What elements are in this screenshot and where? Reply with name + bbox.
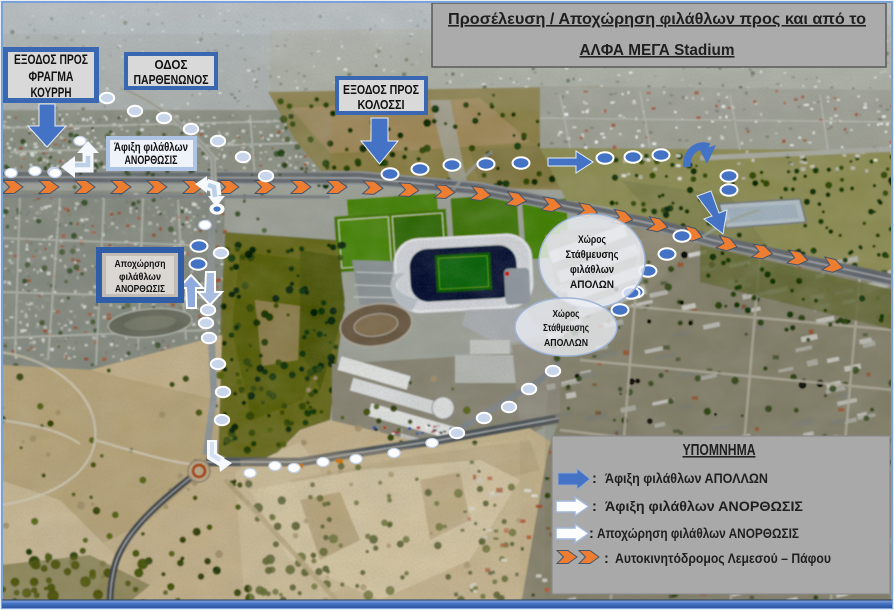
svg-text:ΑΠΟΛΩΝ: ΑΠΟΛΩΝ (570, 279, 614, 291)
svg-text:Στάθμευσης: Στάθμευσης (566, 249, 619, 261)
svg-text:ΕΞΟΔΟΣ ΠΡΟΣ: ΕΞΟΔΟΣ ΠΡΟΣ (343, 83, 419, 97)
svg-text:ΑΝΟΡΘΩΣΙΣ: ΑΝΟΡΘΩΣΙΣ (115, 283, 165, 295)
svg-text:ΚΟΛΟΣΣΙ: ΚΟΛΟΣΣΙ (358, 98, 405, 112)
svg-text:ΚΟΥΡΡΗ: ΚΟΥΡΡΗ (31, 84, 72, 100)
svg-text:ΠΑΡΘΕΝΩΝΟΣ: ΠΑΡΘΕΝΩΝΟΣ (134, 73, 209, 87)
svg-text:φιλάθλων: φιλάθλων (119, 271, 161, 283)
svg-text:ΥΠΟΜΝΗΜΑ: ΥΠΟΜΝΗΜΑ (683, 442, 756, 459)
svg-text:Αυτοκινητόδρομος Λεμεσού – Πάφ: Αυτοκινητόδρομος Λεμεσού – Πάφου (615, 550, 831, 566)
svg-text:ΟΔΟΣ: ΟΔΟΣ (155, 58, 188, 72)
svg-text:Χώρος: Χώρος (578, 234, 606, 246)
svg-text:ΦΡΑΓΜΑ: ΦΡΑΓΜΑ (29, 68, 74, 84)
svg-text:φιλάθλων: φιλάθλων (570, 264, 614, 276)
svg-text:Προσέλευση / Αποχώρηση φιλάθλω: Προσέλευση / Αποχώρηση φιλάθλων προς και… (448, 11, 866, 28)
svg-text::: : (592, 499, 597, 515)
svg-text:Αποχώρηση: Αποχώρηση (115, 258, 166, 270)
svg-text:Στάθμευσης: Στάθμευσης (543, 322, 589, 334)
svg-text:Άφιξη φιλάθλων ΑΠΟΛΛΩΝ: Άφιξη φιλάθλων ΑΠΟΛΛΩΝ (605, 470, 768, 486)
svg-text::: : (589, 526, 594, 542)
svg-text::: : (592, 471, 597, 487)
svg-text:Χώρος: Χώρος (553, 308, 580, 320)
svg-text:Άφιξη φιλάθλων ΑΝΟΡΘΩΣΙΣ: Άφιξη φιλάθλων ΑΝΟΡΘΩΣΙΣ (605, 498, 803, 514)
svg-text:Άφιξη φιλάθλων: Άφιξη φιλάθλων (114, 142, 188, 154)
svg-text:ΑΝΟΡΘΩΣΙΣ: ΑΝΟΡΘΩΣΙΣ (125, 155, 178, 167)
svg-text:Αποχώρηση φιλάθλων ΑΝΟΡΘΩΣΙΣ: Αποχώρηση φιλάθλων ΑΝΟΡΘΩΣΙΣ (597, 525, 799, 541)
svg-text:ΑΛΦΑ ΜΕΓΑ Stadium: ΑΛΦΑ ΜΕΓΑ Stadium (580, 42, 735, 59)
svg-text:ΕΞΟΔΟΣ ΠΡΟΣ: ΕΞΟΔΟΣ ΠΡΟΣ (14, 51, 88, 67)
svg-text::: : (604, 551, 609, 567)
svg-text:ΑΠΟΛΛΩΝ: ΑΠΟΛΛΩΝ (544, 337, 588, 349)
